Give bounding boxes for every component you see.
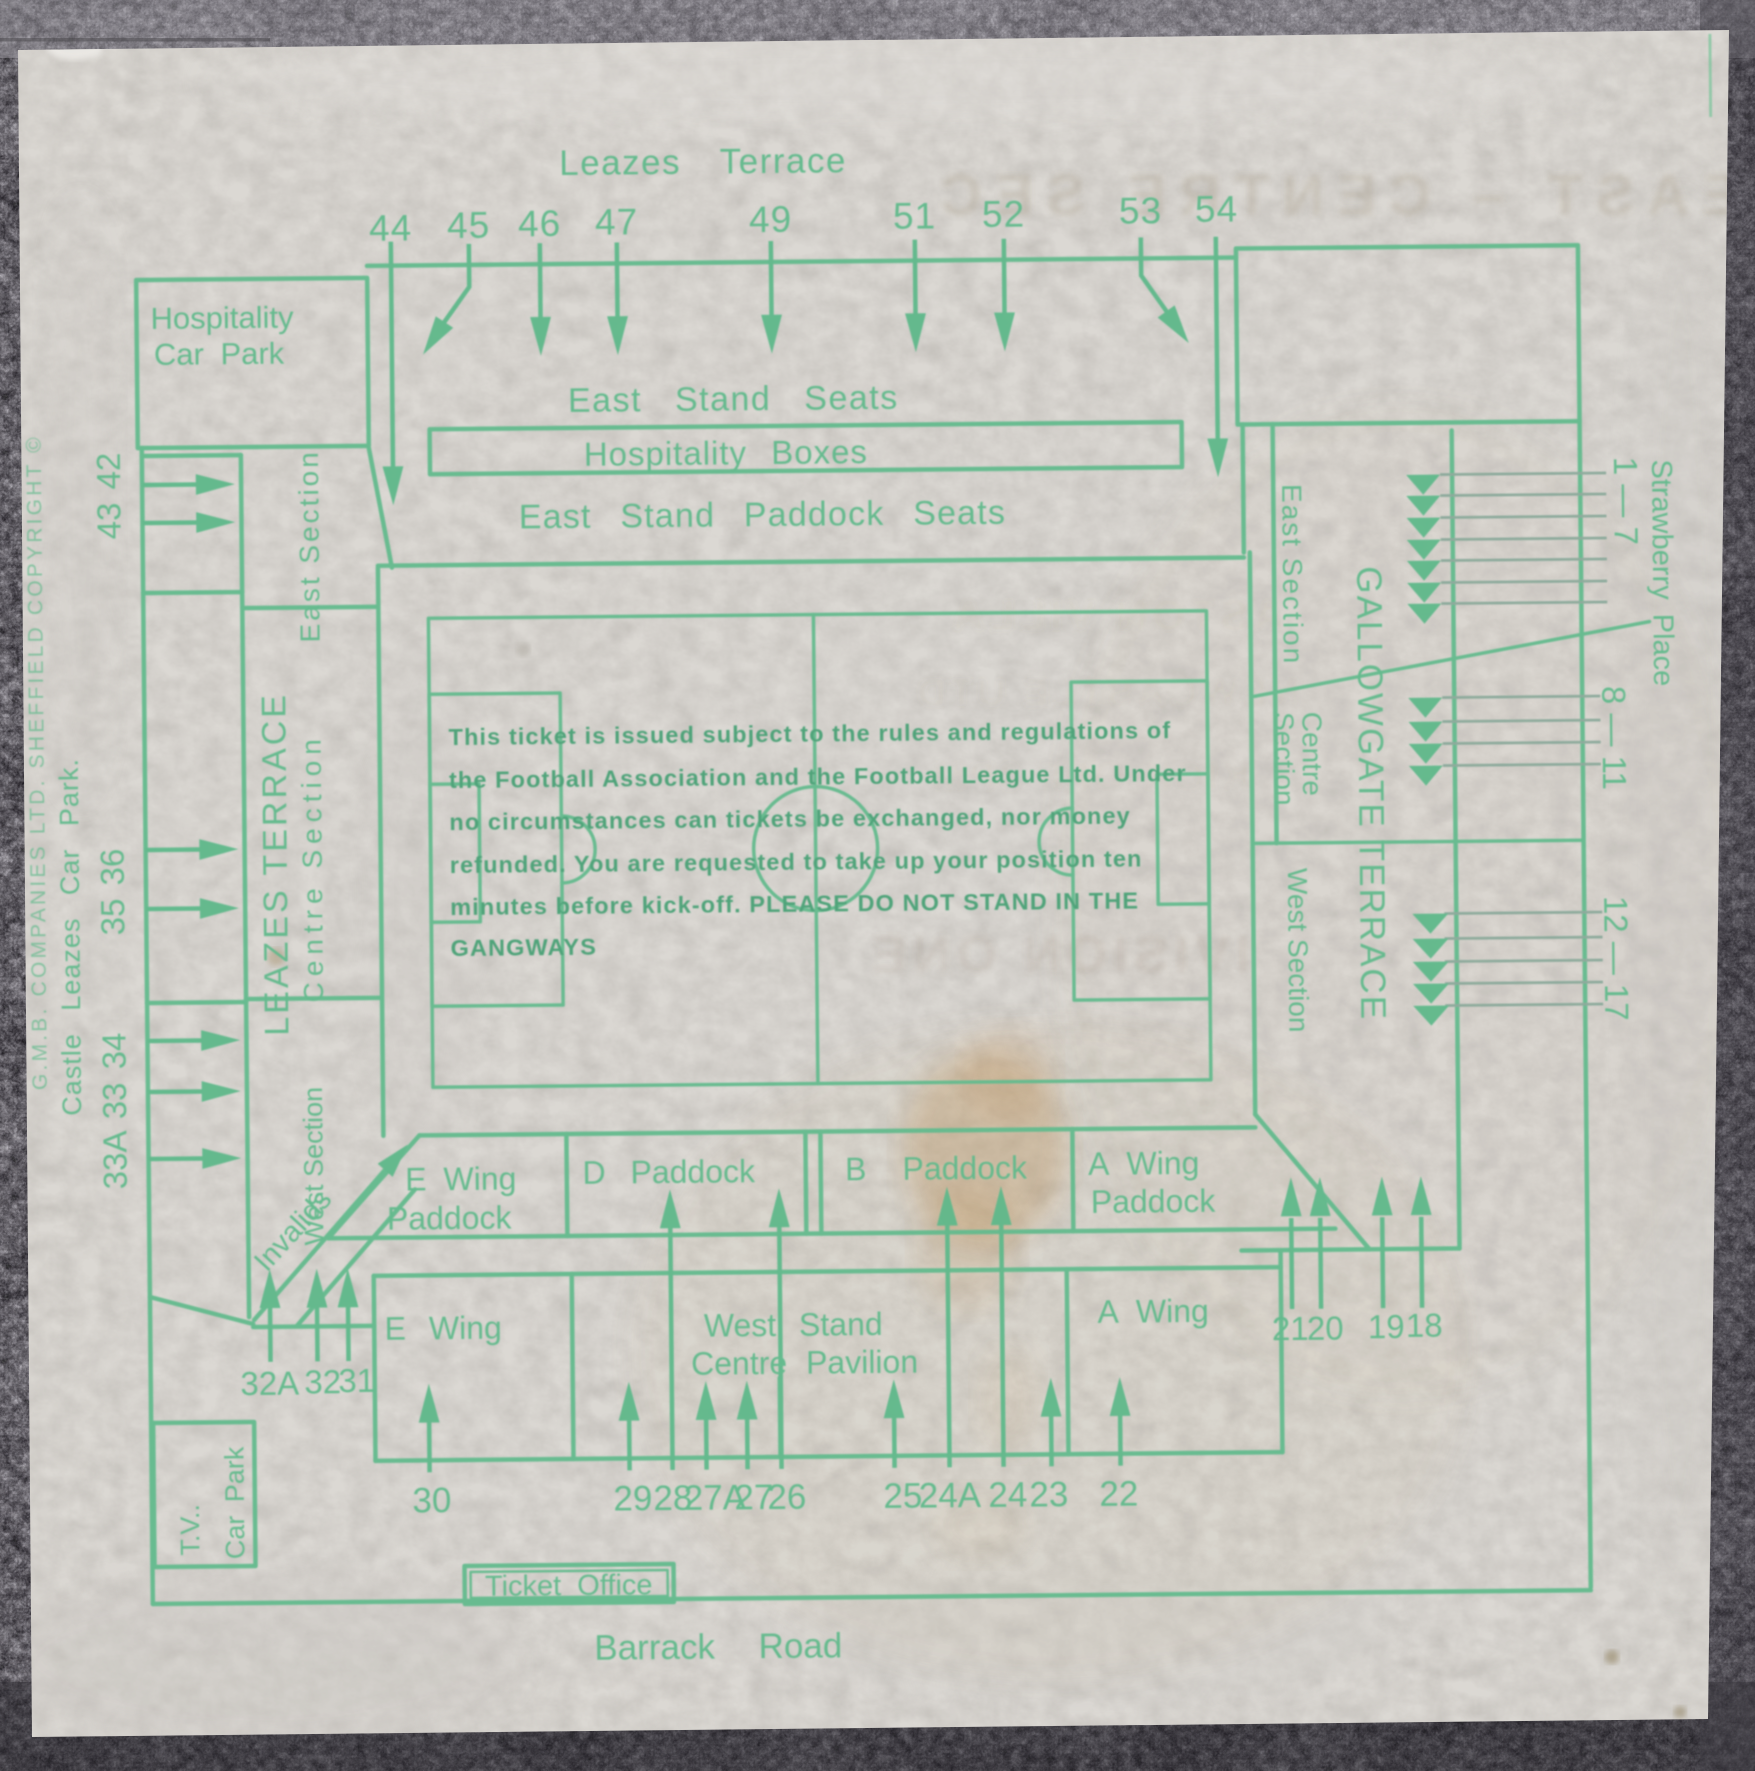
svg-text:E Wing: E Wing (384, 1310, 501, 1347)
svg-text:Hospitality Boxes: Hospitality Boxes (584, 433, 868, 473)
svg-text:46: 46 (518, 203, 562, 244)
svg-text:Hospitality: Hospitality (150, 300, 294, 336)
svg-text:51: 51 (893, 195, 937, 236)
svg-text:44: 44 (369, 207, 413, 248)
svg-text:Ticket Office: Ticket Office (485, 1569, 653, 1603)
svg-text:45: 45 (447, 205, 491, 246)
svg-text:8 — 11: 8 — 11 (1595, 686, 1633, 790)
svg-text:33A 33 34: 33A 33 34 (95, 1032, 134, 1189)
svg-text:54: 54 (1195, 189, 1239, 230)
svg-text:18: 18 (1406, 1307, 1443, 1344)
svg-text:Centre: Centre (1296, 712, 1328, 796)
svg-text:LEAZES TERRACE: LEAZES TERRACE (255, 692, 296, 1036)
svg-text:30: 30 (412, 1481, 451, 1520)
svg-text:24A: 24A (919, 1476, 982, 1516)
svg-text:Car Park: Car Park (219, 1446, 250, 1559)
svg-text:Paddock: Paddock (902, 1150, 1028, 1187)
svg-text:East Stand Paddock Seats: East Stand Paddock Seats (519, 494, 1007, 537)
svg-text:19: 19 (1368, 1308, 1405, 1345)
svg-text:Section: Section (1268, 712, 1300, 806)
svg-text:B: B (845, 1151, 867, 1187)
svg-text:D Paddock: D Paddock (582, 1153, 756, 1191)
svg-text:35 36: 35 36 (94, 849, 132, 936)
svg-text:12 — 17: 12 — 17 (1597, 896, 1635, 1021)
svg-text:32: 32 (304, 1363, 341, 1400)
svg-text:43 42: 43 42 (90, 453, 128, 540)
svg-text:49: 49 (749, 199, 793, 240)
svg-text:1 — 7: 1 — 7 (1607, 457, 1645, 545)
svg-text:Paddock: Paddock (387, 1200, 513, 1237)
svg-text:GANGWAYS: GANGWAYS (450, 934, 597, 961)
svg-text:22: 22 (1099, 1475, 1138, 1514)
svg-text:A Wing: A Wing (1088, 1145, 1200, 1182)
svg-text:Centre Section: Centre Section (296, 733, 330, 1003)
svg-text:Car Park: Car Park (154, 336, 285, 372)
svg-text:23: 23 (1029, 1475, 1068, 1514)
svg-text:East Section: East Section (293, 449, 326, 642)
svg-text:Paddock: Paddock (1091, 1183, 1217, 1220)
svg-text:25: 25 (883, 1477, 922, 1516)
svg-text:32A: 32A (240, 1365, 299, 1403)
svg-text:52: 52 (982, 194, 1026, 235)
svg-text:24: 24 (988, 1476, 1027, 1515)
svg-text:East Stand Seats: East Stand Seats (568, 379, 899, 420)
svg-text:T.V..: T.V.. (175, 1504, 205, 1556)
svg-text:Barrack Road: Barrack Road (594, 1626, 842, 1667)
svg-text:20: 20 (1307, 1310, 1344, 1347)
svg-text:Castle Leazes Car Park.: Castle Leazes Car Park. (54, 758, 87, 1116)
svg-text:West Section: West Section (298, 1087, 330, 1246)
svg-text:21: 21 (1272, 1310, 1309, 1347)
svg-text:West Stand: West Stand (704, 1306, 883, 1344)
svg-text:EAST – CENTRE SEC: EAST – CENTRE SEC (927, 163, 1741, 228)
svg-text:47: 47 (595, 201, 639, 242)
svg-text:Centre Pavilion: Centre Pavilion (691, 1344, 918, 1382)
svg-text:26: 26 (767, 1478, 806, 1517)
svg-text:Strawberry Place: Strawberry Place (1645, 459, 1679, 686)
svg-text:East Section: East Section (1276, 484, 1309, 665)
svg-text:31: 31 (338, 1362, 375, 1399)
svg-text:Leazes Terrace: Leazes Terrace (559, 141, 847, 183)
svg-text:29: 29 (613, 1479, 652, 1518)
svg-text:A Wing: A Wing (1097, 1293, 1209, 1330)
svg-text:GALLOWGATE TERRACE: GALLOWGATE TERRACE (1349, 566, 1392, 1021)
svg-text:53: 53 (1119, 190, 1163, 231)
svg-text:West Section: West Section (1282, 868, 1315, 1033)
svg-text:E Wing: E Wing (405, 1160, 516, 1197)
